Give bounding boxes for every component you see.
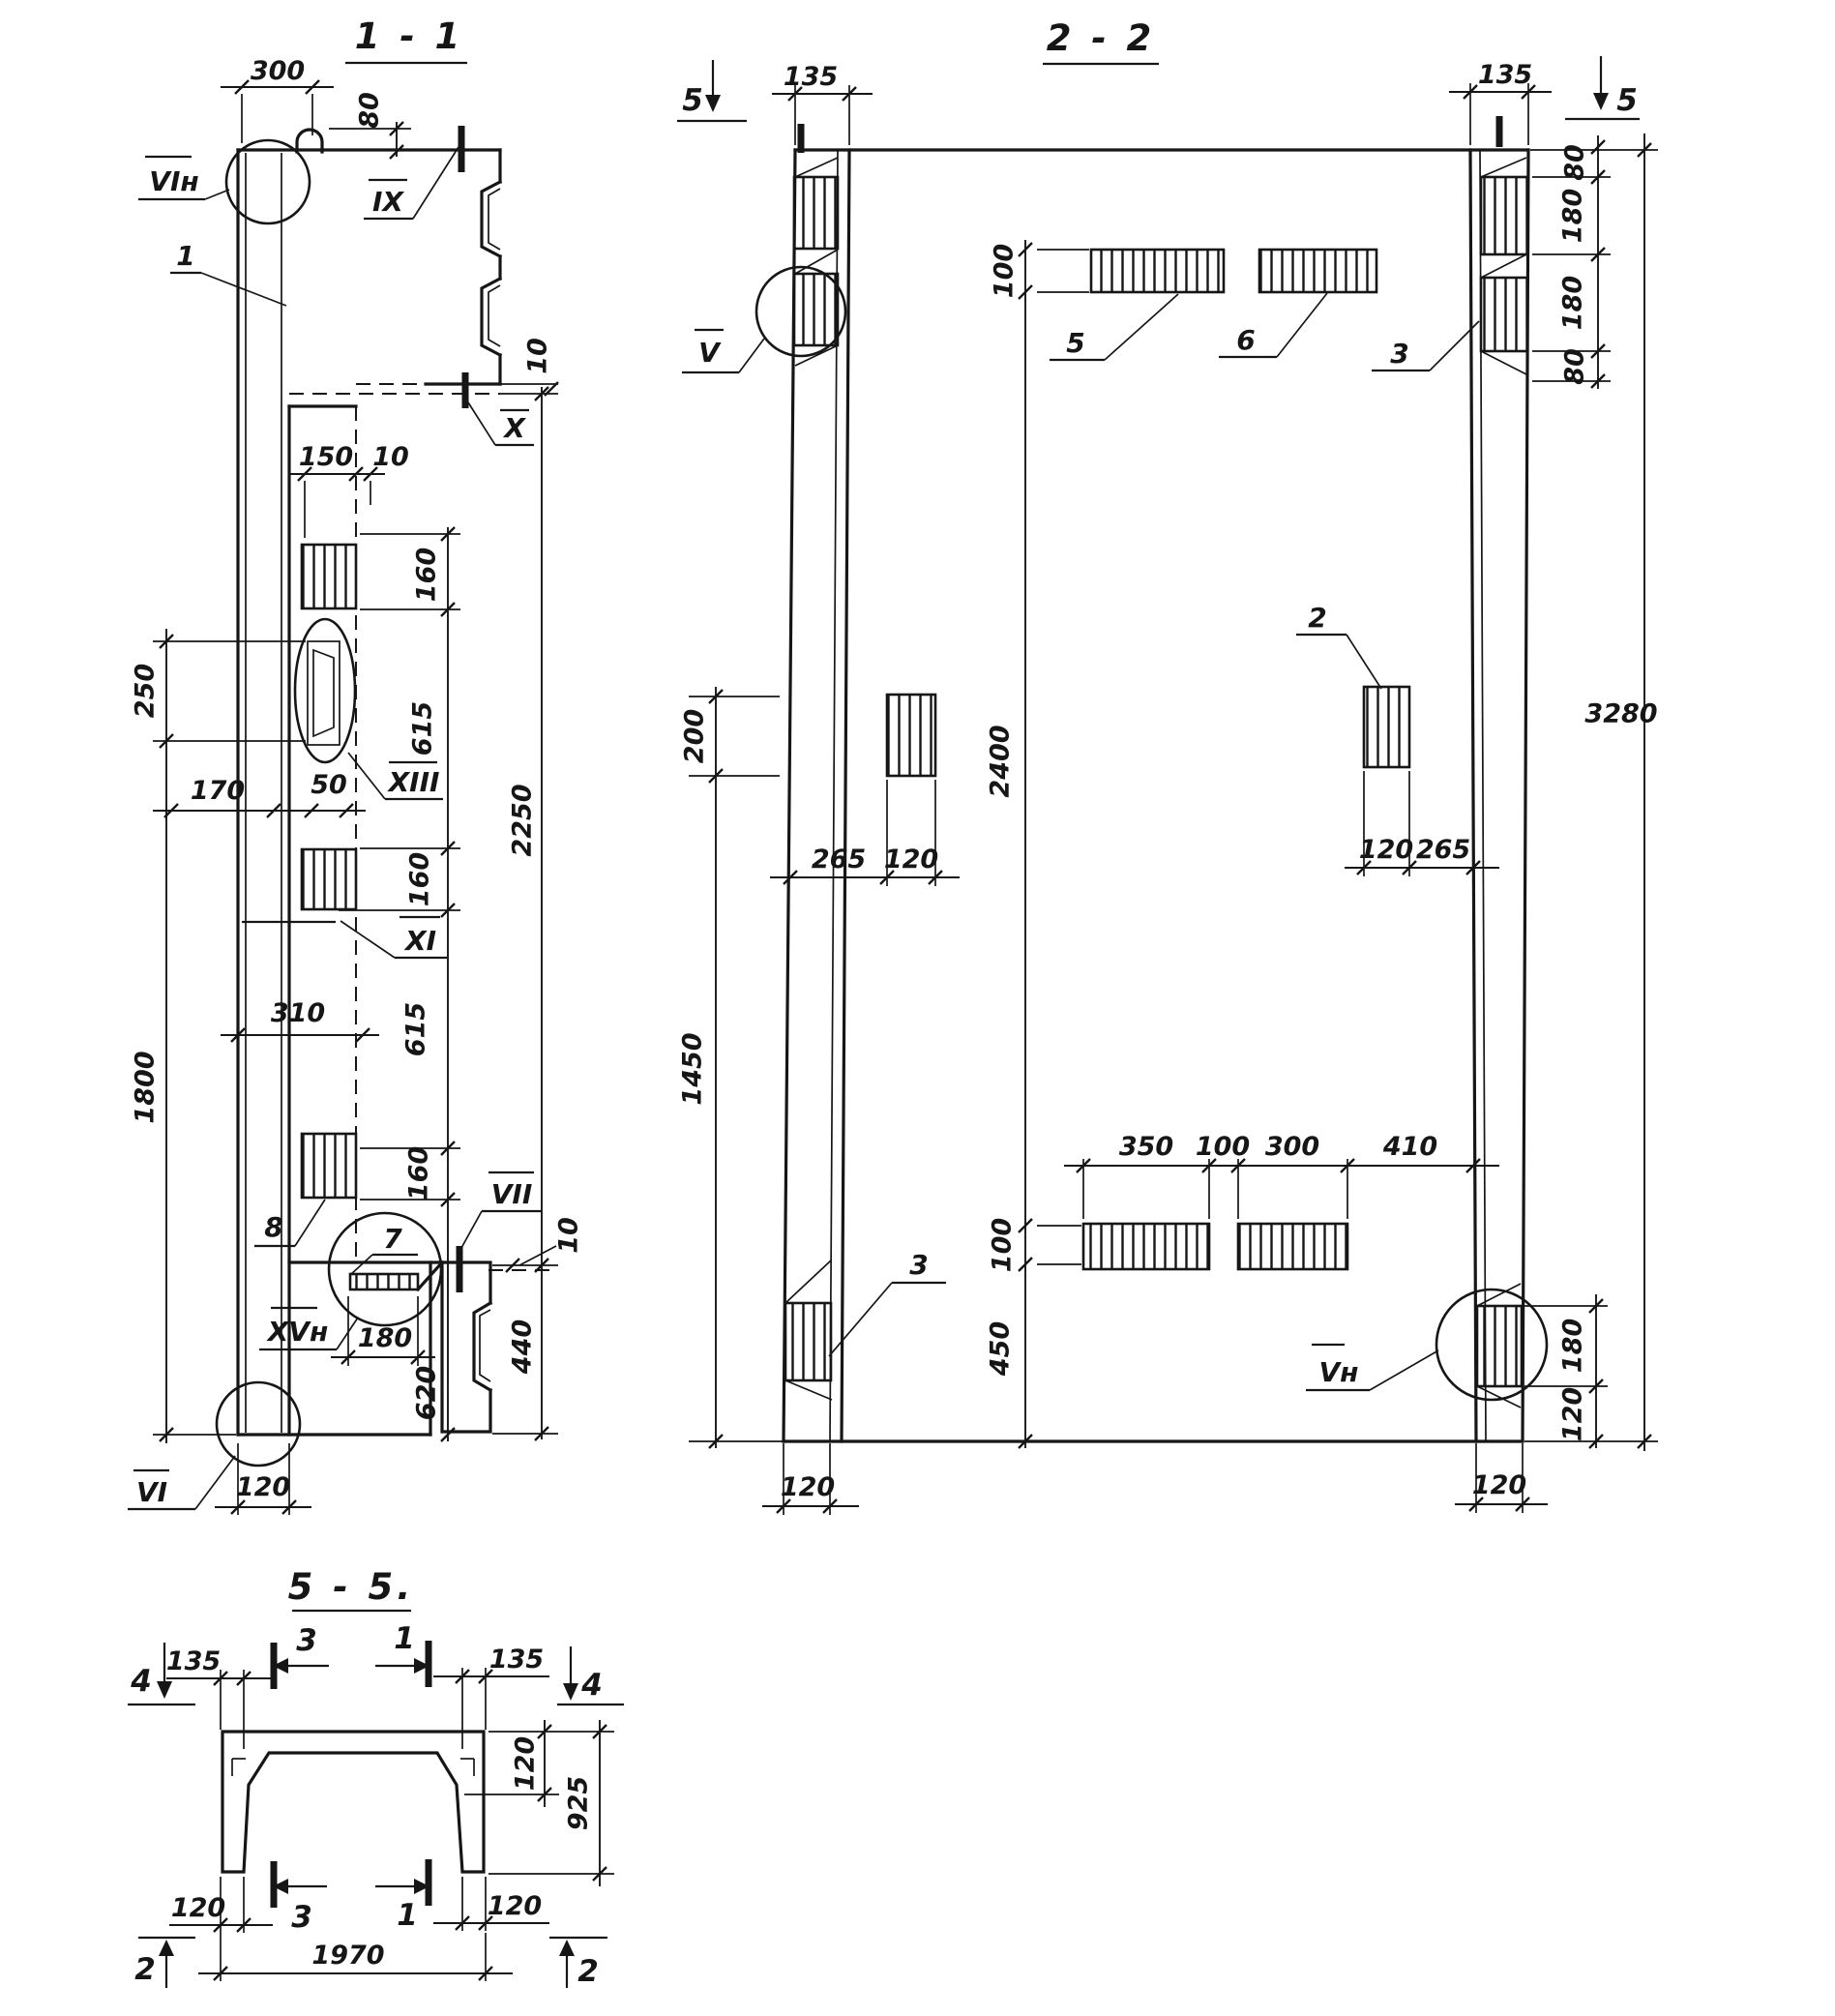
cut-marker-2r-text: 2 [577,1954,599,1989]
dim-135l55-text: 135 [166,1646,221,1676]
node-label-ix: IX [364,147,459,219]
dim-180r-text: 180 [1558,1319,1588,1373]
dim-135-left-55: 135 [166,1646,273,1749]
part-label-7: 7 [350,1223,418,1275]
cut-marker-5-left: 5 [677,60,747,121]
dim-1800-text: 1800 [131,1051,161,1123]
dim-stack-right-top: 80 180 180 80 [1532,135,1611,389]
dim-310-text: 310 [271,998,325,1028]
cut-marker-2-right: 2 [549,1938,607,1989]
part-label-1-text: 1 [176,240,194,272]
part-label-3-bottom: 3 [829,1249,946,1356]
embed-plate [785,1303,831,1380]
embed-plate [302,1134,356,1198]
cut-marker-1b-text: 1 [397,1898,418,1933]
dim-615a-text: 615 [408,701,438,756]
dim-180: 180 [331,1296,435,1366]
dim-450-text: 450 [986,1321,1016,1377]
embed-plate [1083,1224,1209,1269]
cut-marker-3t-text: 3 [296,1623,317,1658]
dim-200-1450: 200 1450 [678,687,784,1448]
weld-strip [350,1274,418,1290]
embed-plate [1481,278,1527,351]
embed-plate-2 [1364,687,1409,767]
node-label-xvh: XVн [259,1308,358,1349]
node-label-xvh-text: XVн [266,1316,329,1348]
dim-135r55-text: 135 [489,1645,544,1675]
dim-350-100-300-410: 350 100 300 410 [1064,1132,1499,1219]
dim-180b-text: 180 [1558,276,1588,330]
node-label-ix-text: IX [372,186,404,218]
node-label-vnh: Vн [1306,1345,1438,1390]
drawing-sheet: 1 - 1 [0,0,1835,2016]
part-label-5-text: 5 [1066,327,1084,359]
dim-120-925: 120 925 [464,1720,614,1886]
part-label-5: 5 [1050,294,1178,360]
part-label-1: 1 [170,240,286,306]
dim-120-bl-55: 120 [169,1877,273,1933]
dim-135r-text: 135 [1478,60,1532,90]
part-label-3b-text: 3 [909,1249,928,1281]
dim-440-text: 440 [508,1319,538,1375]
dim-80b-text: 80 [1560,348,1590,385]
cut-marker-3b-text: 3 [291,1900,312,1935]
dim-10-gap-text: 10 [554,1217,584,1254]
section-1-1: 1 - 1 [128,15,584,1515]
cut-marker-5-right: 5 [1565,56,1640,119]
node-label-v-text: V [698,337,722,369]
dim-250-text: 250 [131,664,161,718]
node-label-vih: VIн [138,157,229,199]
dim-120br55-text: 120 [488,1891,542,1921]
embed-plate [302,849,356,909]
dim-2250-440: 2250 440 [492,387,558,1440]
node-label-vi: VI [128,1456,235,1509]
dim-10-flange-text: 10 [523,338,553,374]
node-label-x-text: X [502,412,526,444]
section-2-2: 2 - 2 5 5 [677,17,1658,1515]
dim-120rb-text: 120 [1558,1387,1588,1441]
dim-10-gap: 10 [488,1217,584,1272]
node-label-xiii: XIII [348,753,443,799]
section-5-5-title-text: 5 - 5. [288,1566,415,1608]
dim-100b-text: 100 [988,1218,1018,1272]
node-label-xi-text: XI [403,925,436,957]
dim-120l-text: 120 [884,845,938,875]
section-2-2-title-text: 2 - 2 [1047,17,1156,59]
dim-180-text: 180 [358,1323,412,1353]
channel-outline [222,1732,484,1872]
dim-120-br-55: 120 [433,1877,549,1931]
dim-100m-text: 100 [1196,1132,1250,1162]
dim-620-text: 620 [412,1366,442,1420]
dim-300-text: 300 [1265,1132,1319,1162]
detail-circle-vi [217,1382,300,1466]
cut-marker-4-right: 4 [557,1646,624,1705]
node-label-vnh-text: Vн [1318,1356,1358,1388]
part-label-2: 2 [1296,602,1381,689]
embed-plate [302,545,356,608]
embed-plate [794,274,838,345]
dim-10b-text: 10 [372,442,409,472]
cut-marker-5r-text: 5 [1616,83,1638,118]
dim-120bl-text: 120 [781,1472,835,1502]
node-label-vii-text: VII [491,1178,533,1210]
embed-plate-5 [1091,250,1224,292]
cut-marker-1-bottom: 1 [375,1859,429,1933]
cut-marker-5l-text: 5 [682,83,703,118]
dim-2250-text: 2250 [508,784,538,856]
dim-80-text: 80 [355,92,385,129]
part-label-8-text: 8 [264,1211,282,1243]
node-label-x: X [468,402,534,445]
part-label-2-text: 2 [1308,602,1326,634]
cut-marker-1t-text: 1 [394,1621,415,1656]
dim-170-50: 170 50 [153,770,366,817]
dim-160a-text: 160 [412,548,442,602]
embed-plate [1477,1306,1522,1386]
dim-160c-text: 160 [404,1146,434,1201]
dim-150-text: 150 [299,442,353,472]
section-2-2-title: 2 - 2 [1043,17,1159,64]
node-label-vih-text: VIн [149,165,198,197]
dim-265r-text: 265 [1416,835,1470,865]
dim-3280: 3280 [1524,133,1658,1451]
cut-marker-2l-text: 2 [134,1952,156,1987]
dim-120-bottom-right: 120 [1455,1443,1548,1513]
cut-marker-3-bottom: 3 [273,1861,327,1935]
cut-marker-4r-text: 4 [580,1668,603,1703]
embed-plate [887,695,935,776]
node-label-xiii-text: XIII [387,766,440,798]
dim-350-text: 350 [1119,1132,1173,1162]
dim-180-120-right: 180 120 [1524,1294,1608,1448]
cut-marker-1-top: 1 [375,1621,429,1687]
drawing-canvas: 1 - 1 [0,0,1835,2016]
part-label-7-text: 7 [383,1223,402,1255]
part-label-6-text: 6 [1236,324,1255,356]
dim-120t-text: 120 [511,1736,541,1791]
node-label-vii: VII [461,1172,542,1248]
dim-120-bottom-text: 120 [236,1472,290,1502]
dim-200-text: 200 [680,709,710,763]
dim-2400-text: 2400 [986,725,1016,797]
dim-135-left: 135 [772,62,873,145]
part-label-3t-text: 3 [1390,338,1408,370]
dim-1970-text: 1970 [311,1941,384,1971]
embed-plate [794,177,838,249]
embed-plate-6 [1259,250,1376,292]
dim-10-flange: 10 [500,338,558,396]
dim-120br-text: 120 [1472,1470,1526,1500]
dim-265-120-left: 265 120 [770,780,960,886]
dim-170-text: 170 [191,776,245,806]
dim-50-text: 50 [311,770,347,800]
section-5-5-title: 5 - 5. [288,1566,415,1611]
cut-marker-2-left: 2 [134,1938,195,1988]
node-label-v: V [682,330,764,372]
dim-135-right-55: 135 [433,1645,549,1749]
dim-100t-text: 100 [990,244,1020,298]
embed-plate [1238,1224,1347,1269]
dim-410-text: 410 [1382,1132,1437,1162]
dim-3280-text: 3280 [1584,699,1657,729]
part-label-6: 6 [1219,293,1327,357]
dim-1970: 1970 [198,1933,513,1981]
dim-925-text: 925 [564,1776,594,1830]
dim-120-bottom-left: 120 [762,1443,859,1515]
embed-plate [1481,177,1527,254]
dim-300-text: 300 [251,56,305,86]
dim-615b-text: 615 [401,1002,431,1056]
part-label-3-top: 3 [1372,321,1479,371]
section-1-1-title-text: 1 - 1 [355,15,464,57]
dim-1450-text: 1450 [678,1032,708,1105]
dim-160b-text: 160 [405,852,435,906]
dim-120-265-right: 120 265 [1345,771,1499,876]
dim-135l-text: 135 [784,62,838,92]
dim-120bl55-text: 120 [171,1893,225,1923]
dim-265l-text: 265 [812,845,866,875]
cut-marker-4l-text: 4 [130,1664,152,1699]
section-5-5: 5 - 5. 4 4 3 1 135 [128,1566,624,1989]
cut-marker-3-top: 3 [273,1623,329,1689]
dim-180a-text: 180 [1558,189,1588,243]
dim-120r-text: 120 [1359,835,1413,865]
dim-chain-center: 100 2400 100 450 [986,240,1090,1448]
dim-150-10: 150 10 [288,442,409,538]
node-label-vi-text: VI [136,1476,167,1508]
section-1-1-title: 1 - 1 [345,15,467,63]
